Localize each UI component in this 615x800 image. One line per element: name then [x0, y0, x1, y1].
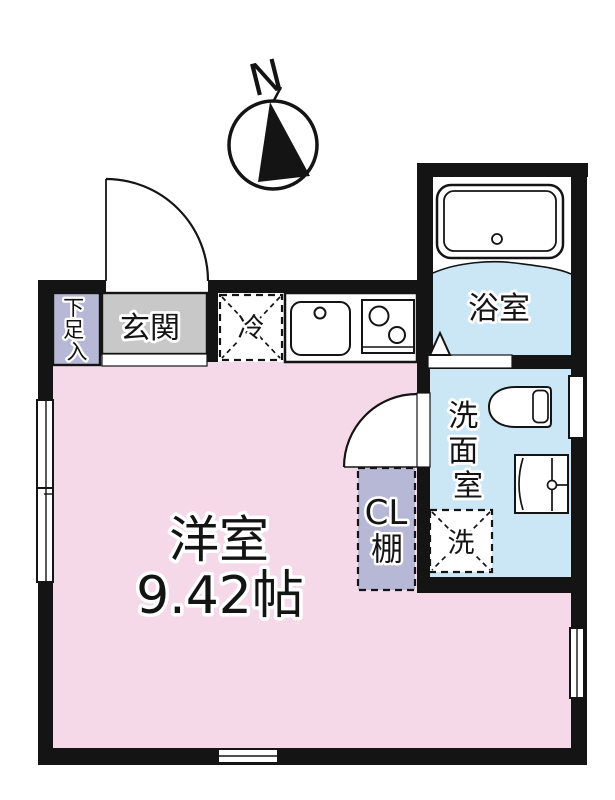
entrance-label: 玄関: [120, 311, 180, 346]
bathtub-drain-icon: [492, 234, 502, 244]
toilet: [489, 387, 551, 427]
wall-entrance-kitchen-divider: [207, 293, 218, 362]
washbasin-faucet-icon: [548, 481, 557, 490]
washing-machine-label: 洗: [448, 528, 475, 559]
washing-machine-space: 洗: [430, 510, 492, 572]
floor-plan: N: [0, 0, 615, 800]
washroom-char-1: 洗: [448, 399, 478, 434]
wall-bathroom-left: [417, 163, 433, 369]
entrance-step: [102, 354, 207, 366]
stove-burner-large-icon: [370, 307, 389, 326]
kitchen-counter: [285, 293, 417, 362]
main-room-size-label: 9.42帖: [136, 566, 304, 626]
washroom-char-2: 面: [448, 434, 478, 469]
main-room-label: 洋室: [169, 511, 269, 569]
wall-washroom-bottom: [417, 577, 571, 593]
bathroom-label: 浴室: [468, 291, 530, 327]
refrigerator-space: 冷: [220, 295, 282, 360]
window-washroom: [569, 376, 584, 438]
shoe-box-char-2: 足: [63, 318, 84, 342]
refrigerator-label: 冷: [238, 313, 265, 344]
wall-bathroom-top: [417, 163, 588, 177]
toilet-tank-icon: [533, 391, 548, 423]
shoe-box-label: 下 足 入: [63, 296, 91, 364]
washbasin-counter-icon: [515, 455, 568, 513]
closet-label-line1: CL: [365, 493, 408, 533]
washbasin: [515, 455, 568, 513]
closet-label-line2: 棚: [371, 530, 403, 568]
washroom-char-3: 室: [453, 469, 483, 504]
interior-door-leaf: [417, 393, 430, 467]
wall-top-right: [208, 280, 430, 293]
bathtub: [437, 185, 563, 258]
floor-plan-page: N: [0, 0, 615, 800]
stove-icon: [362, 300, 414, 353]
closet-shelf: CL 棚: [358, 468, 415, 590]
wall-bottom: [38, 748, 587, 765]
shoe-box-char-1: 下: [63, 296, 84, 320]
window-left: [37, 400, 53, 582]
shoe-box-char-3: 入: [67, 340, 88, 364]
bathroom-door-opening: [428, 355, 512, 368]
kitchen-faucet-icon: [315, 308, 326, 319]
bathtub-outer-icon: [437, 185, 563, 258]
stove-burner-small-icon: [389, 327, 405, 343]
washroom-label: 洗 面 室: [448, 399, 488, 504]
